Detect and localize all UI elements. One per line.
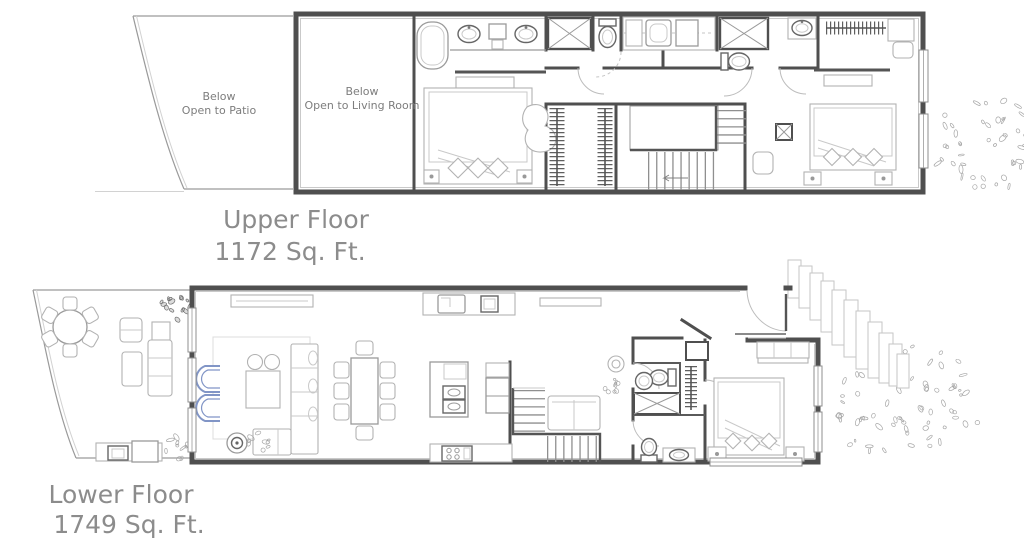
- lower-floor-label: Lower Floor: [48, 480, 194, 509]
- dining-table-icon: [334, 341, 395, 440]
- armchair-icon: [753, 152, 773, 174]
- upper-floor-plan: [95, 14, 928, 192]
- upper-floor-area: 1172 Sq. Ft.: [214, 237, 365, 266]
- plant-icon: [603, 378, 621, 394]
- floor-plan-drawing: Below Open to Patio Below Open to Living…: [0, 0, 1024, 548]
- bathtub-icon: [417, 22, 448, 69]
- toilet-icon: [721, 53, 750, 70]
- kitchen-counter-icon: [423, 293, 601, 315]
- bathroom-fixtures: [634, 342, 708, 462]
- master-bed-icon: [424, 88, 532, 184]
- shower-icon: [720, 18, 768, 49]
- outdoor-steps-icon: [788, 260, 909, 388]
- fireplace-icon: [231, 295, 313, 307]
- loveseat-icon: [548, 356, 624, 430]
- annotation-below-open-to-patio: Below: [202, 90, 235, 103]
- fridge-icon: [486, 363, 509, 413]
- tree-icon: [933, 97, 1024, 190]
- kitchen-island-icon: [430, 362, 468, 417]
- vanity-sink-icon: [788, 18, 816, 39]
- range-counter-icon: [430, 444, 512, 462]
- annotation-below-open-to-living-room: Below: [345, 85, 378, 98]
- grill-icon: [96, 441, 162, 462]
- lower-floor-area: 1749 Sq. Ft.: [53, 510, 204, 539]
- annotation-below-open-to-patio-line2: Open to Patio: [182, 104, 257, 117]
- laundry-icon: [623, 17, 715, 50]
- annotation-below-open-to-living-room-line2: Open to Living Room: [305, 99, 420, 112]
- upper-floor-label: Upper Floor: [223, 205, 370, 234]
- coffee-table-icon: [246, 355, 280, 409]
- duct-shaft-icon: [776, 124, 792, 140]
- lower-floor-plan: [33, 288, 822, 466]
- accent-chairs-icon[interactable]: [196, 366, 220, 421]
- shower-icon: [548, 18, 591, 49]
- toilet-icon: [599, 19, 616, 48]
- speaker-table-icon: [227, 433, 247, 453]
- outdoor-sofa-icon: [120, 318, 172, 396]
- patio-table-icon: [41, 297, 100, 357]
- floor-plan-page: Below Open to Patio Below Open to Living…: [0, 0, 1024, 548]
